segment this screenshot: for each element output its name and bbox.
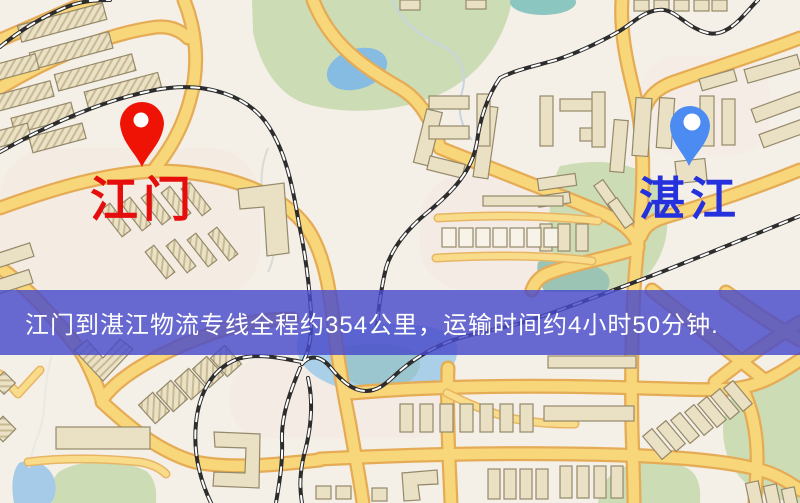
map-canvas (0, 0, 800, 503)
route-info-text: 江门到湛江物流专线全程约354公里，运输时间约4小时50分钟. (0, 305, 719, 340)
origin-label: 江门 (90, 177, 196, 225)
route-info-banner: 江门到湛江物流专线全程约354公里，运输时间约4小时50分钟. (0, 290, 800, 355)
destination-label: 湛江 (639, 176, 741, 222)
map-image: 江门 湛江 江门到湛江物流专线全程约354公里，运输时间约4小时50分钟. (0, 0, 800, 503)
